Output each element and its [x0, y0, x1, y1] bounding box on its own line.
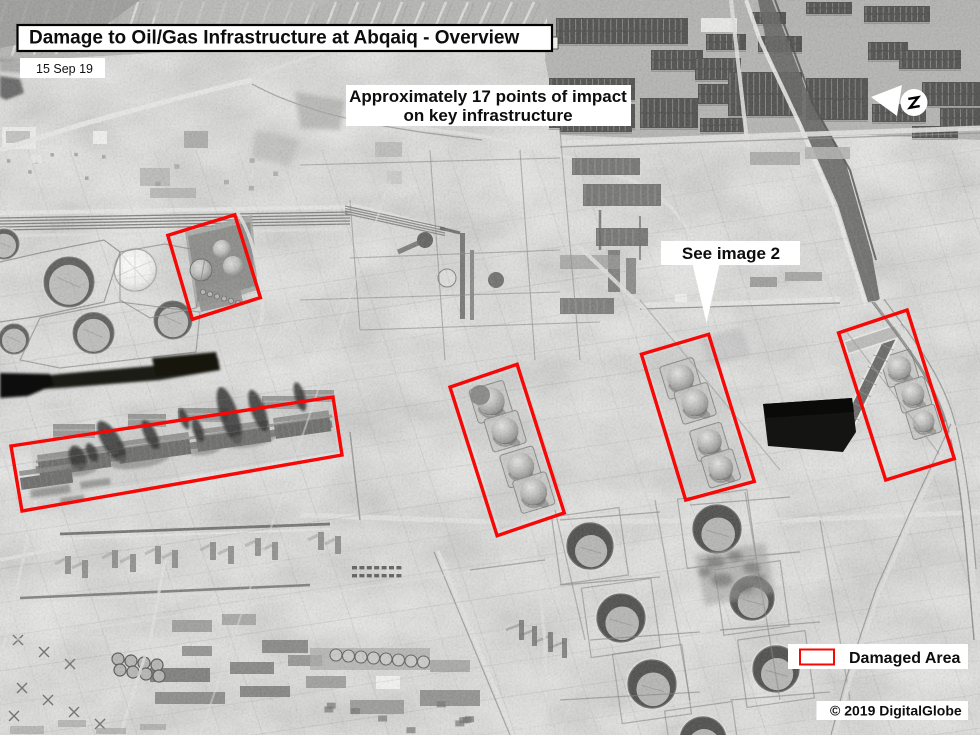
svg-text:15 Sep 19: 15 Sep 19: [36, 62, 93, 76]
svg-text:Damage to Oil/Gas Infrastructu: Damage to Oil/Gas Infrastructure at Abqa…: [29, 28, 519, 49]
svg-text:Approximately 17 points of imp: Approximately 17 points of impact: [349, 87, 627, 106]
svg-text:© 2019 DigitalGlobe: © 2019 DigitalGlobe: [830, 703, 962, 719]
svg-text:See image 2: See image 2: [682, 244, 780, 263]
svg-text:Damaged Area: Damaged Area: [849, 650, 961, 667]
svg-text:on key infrastructure: on key infrastructure: [403, 106, 572, 125]
